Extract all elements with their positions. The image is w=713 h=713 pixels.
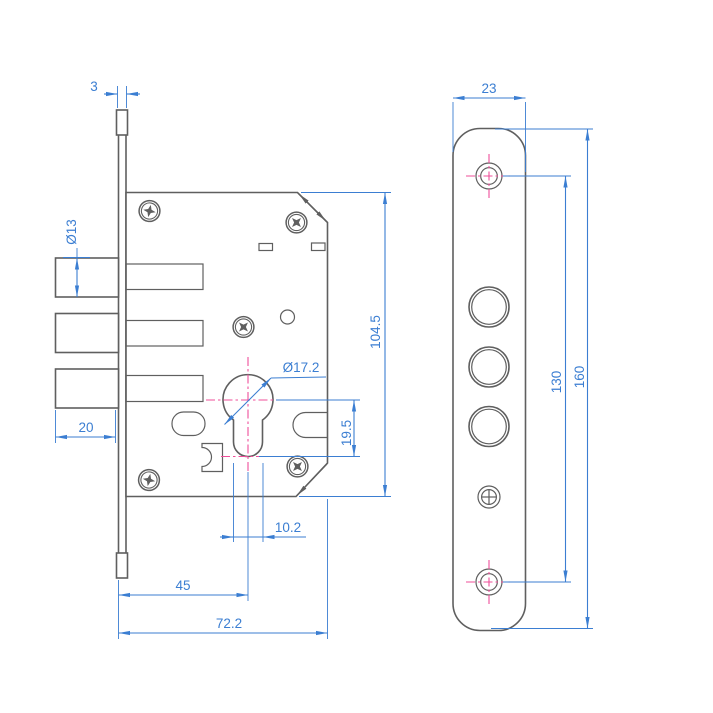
- dim-label-body-depth: 72.2: [216, 616, 242, 631]
- deadbolt-2: [56, 314, 119, 353]
- dim-label-body-height: 104.5: [368, 315, 383, 349]
- dim-label-backset: 45: [175, 578, 190, 593]
- front-view: [453, 129, 526, 631]
- deadbolt-3: [56, 369, 119, 408]
- faceplate-cap-bottom: [117, 553, 128, 578]
- dim-label-cylinder-diameter: Ø17.2: [283, 360, 320, 375]
- lock-body-outline: [126, 193, 328, 497]
- dim-label-screw-spacing: 130: [549, 371, 564, 394]
- deadbolts: [56, 258, 119, 408]
- dim-label-bolt-throw: 20: [78, 420, 93, 435]
- side-view: [56, 110, 328, 578]
- dim-label-plate-height: 160: [572, 366, 587, 389]
- faceplate-cap-top: [117, 110, 128, 135]
- dim-label-plate-thickness: 3: [90, 79, 98, 94]
- dim-bolt-throw: 20: [56, 410, 116, 443]
- dim-label-cylinder-drop: 19.5: [339, 420, 354, 446]
- mortise-lock-drawing: 3 Ø13 20 104.5 Ø17.2 19.5: [0, 0, 713, 713]
- dim-label-plate-width: 23: [481, 81, 496, 96]
- front-plate-outline: [453, 129, 526, 631]
- dim-plate-thickness: 3: [90, 79, 140, 108]
- dim-label-stem-width: 10.2: [275, 520, 301, 535]
- engineering-drawing-canvas: 3 Ø13 20 104.5 Ø17.2 19.5: [0, 0, 713, 713]
- adjust-screw: [478, 486, 500, 508]
- deadbolt-1: [56, 258, 119, 297]
- dim-label-bolt-diameter: Ø13: [64, 219, 79, 245]
